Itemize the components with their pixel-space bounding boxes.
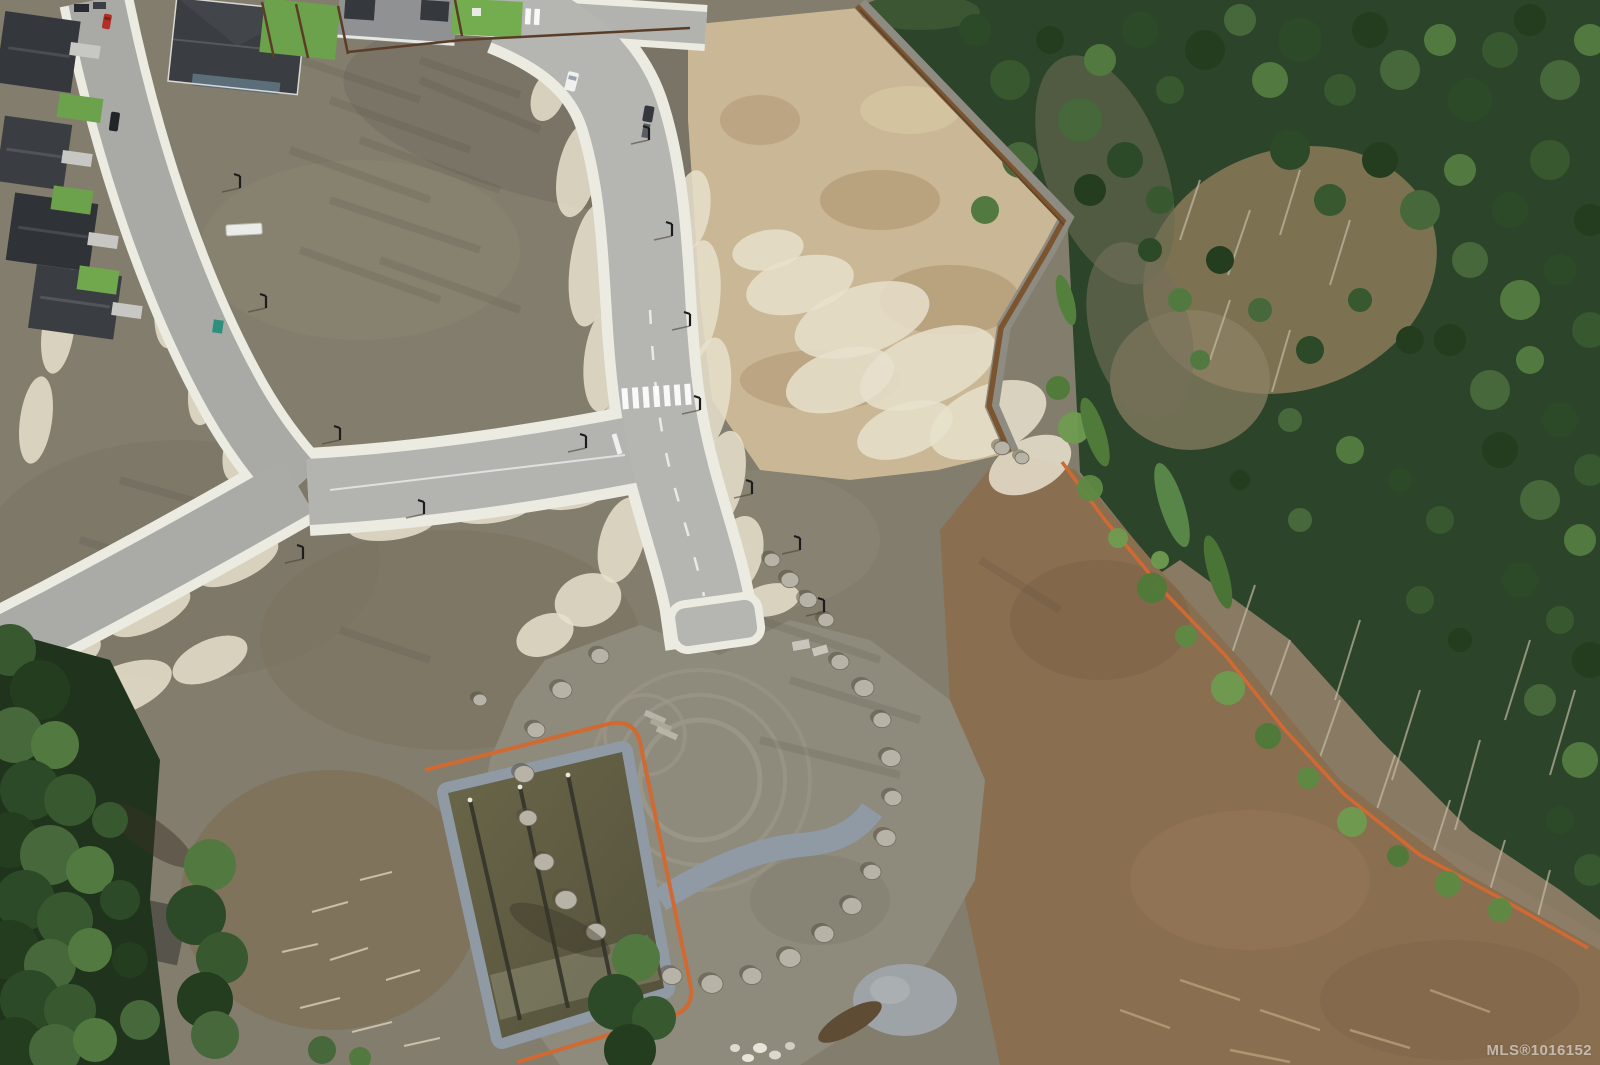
parked-car	[93, 2, 106, 9]
utility-box	[472, 8, 481, 16]
porta-potty	[212, 319, 224, 333]
rv-trailer	[226, 223, 263, 236]
mls-watermark: MLS®1016152	[1486, 1042, 1592, 1059]
parked-car	[74, 4, 89, 12]
aerial-photo: MLS®1016152	[0, 0, 1600, 1065]
